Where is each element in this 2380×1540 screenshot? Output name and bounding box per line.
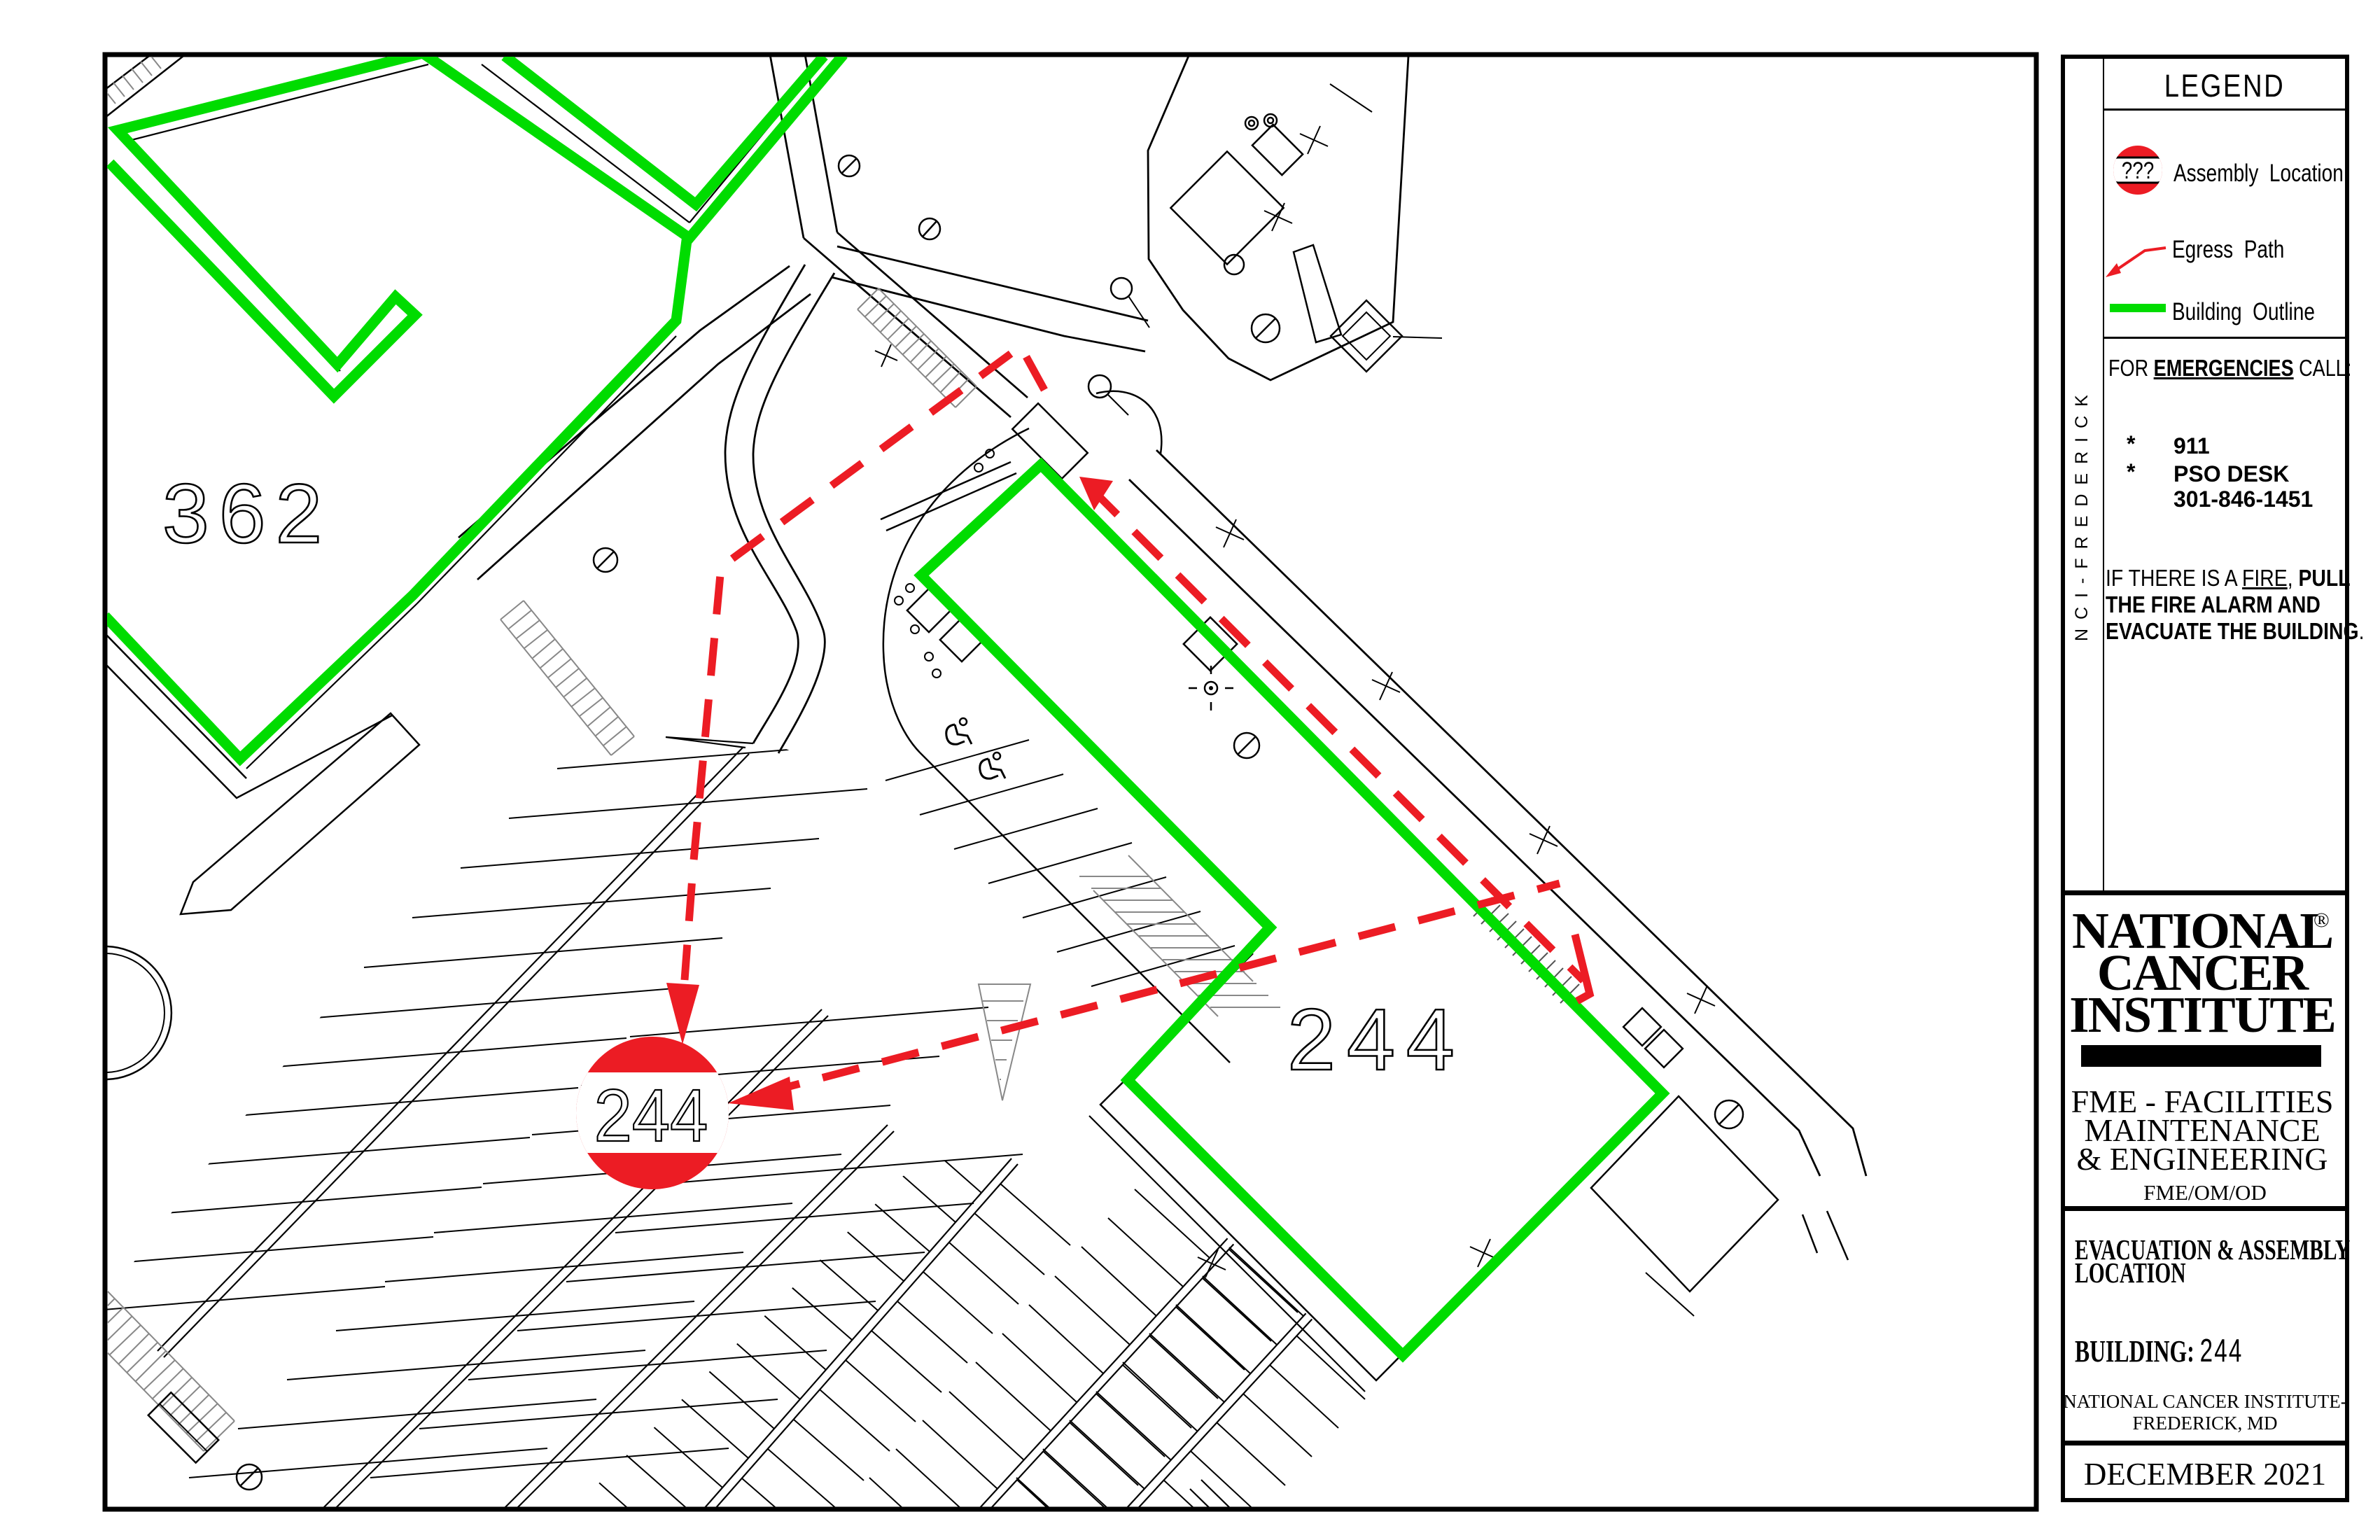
svg-text:362: 362	[162, 467, 332, 561]
svg-text:244: 244	[1287, 992, 1466, 1088]
svg-text:???: ???	[2122, 157, 2155, 183]
svg-text:244: 244	[594, 1074, 708, 1157]
